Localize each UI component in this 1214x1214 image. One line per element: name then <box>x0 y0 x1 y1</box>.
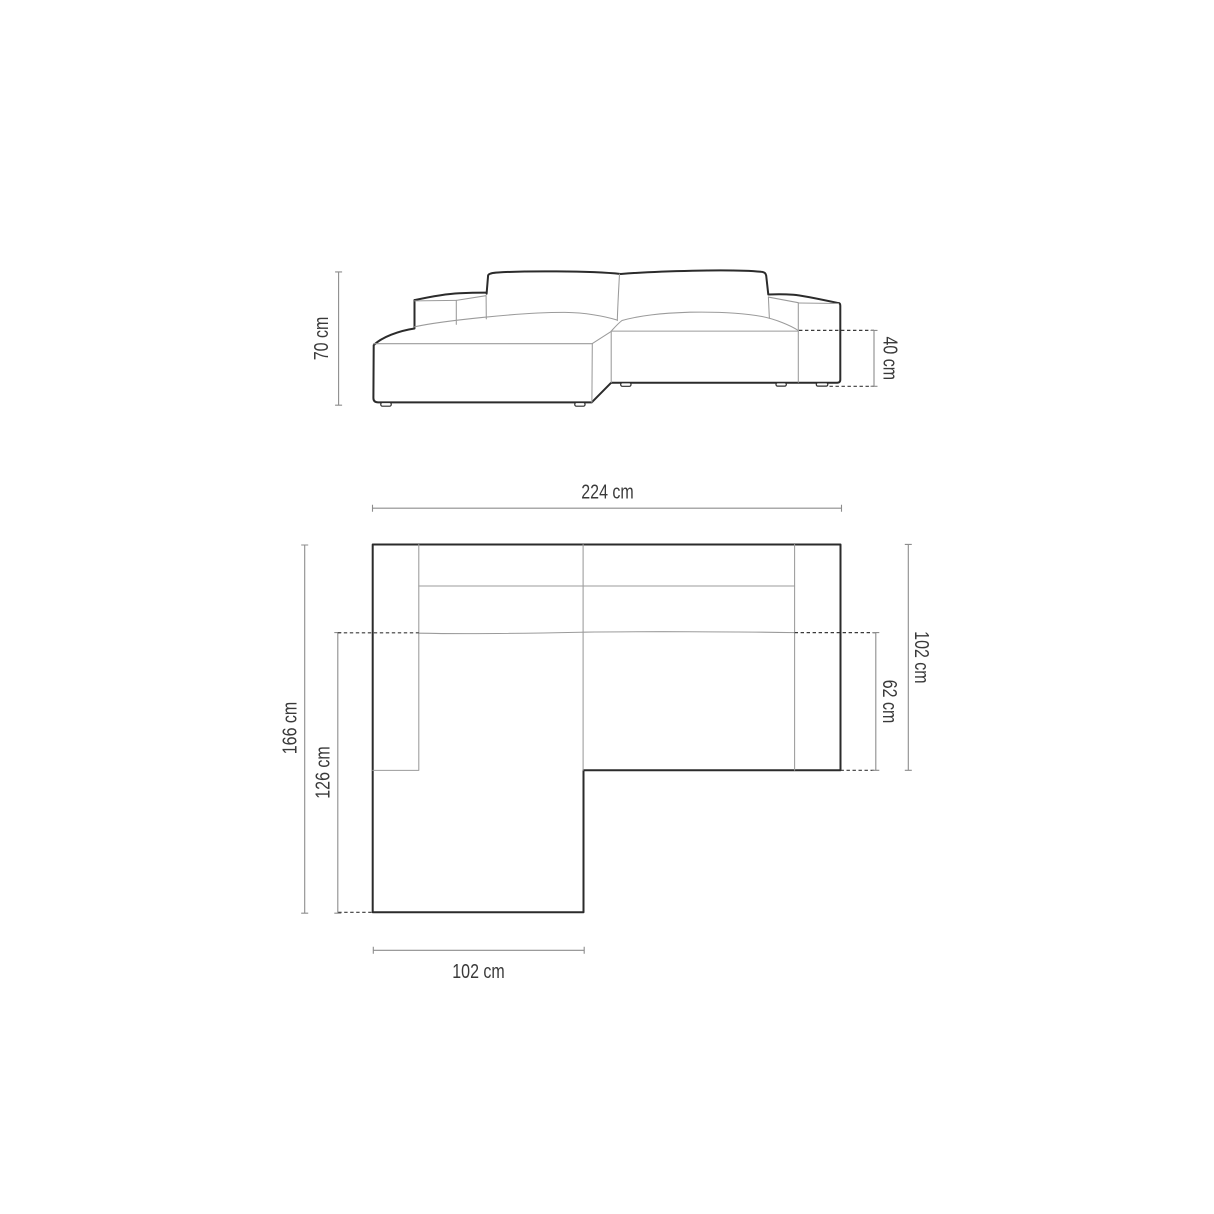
svg-text:102 cm: 102 cm <box>452 960 504 982</box>
svg-text:70 cm: 70 cm <box>311 317 333 361</box>
svg-text:62 cm: 62 cm <box>878 680 900 724</box>
svg-text:224 cm: 224 cm <box>581 481 633 503</box>
svg-text:126 cm: 126 cm <box>312 746 334 798</box>
svg-text:40 cm: 40 cm <box>879 337 901 381</box>
svg-text:166 cm: 166 cm <box>279 702 301 754</box>
svg-text:102 cm: 102 cm <box>910 631 932 683</box>
